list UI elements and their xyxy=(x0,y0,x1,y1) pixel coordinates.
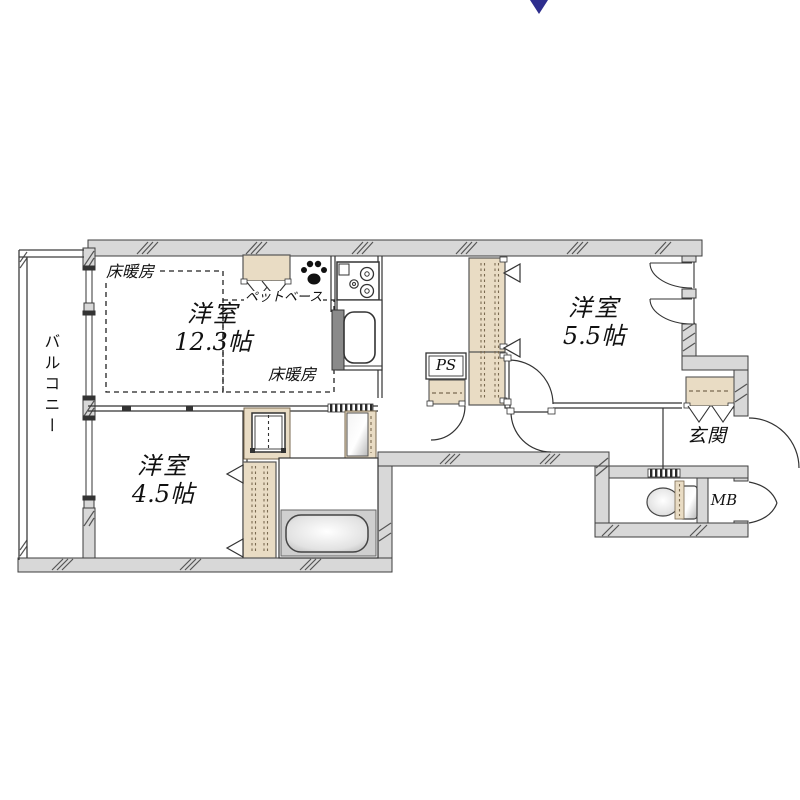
paw-icon xyxy=(301,261,327,285)
pet-base-label: ペットベース xyxy=(244,291,323,306)
entrance-label: 玄関 xyxy=(677,426,737,448)
kitchen xyxy=(332,262,382,370)
burner-icon xyxy=(361,285,374,298)
vanity xyxy=(345,411,376,458)
bedroom2-name: 洋室 xyxy=(494,295,694,323)
burner-icon xyxy=(361,268,374,281)
bathroom xyxy=(279,458,378,558)
shoe-cabinet xyxy=(684,377,734,422)
floorplan-drawing xyxy=(0,0,800,800)
ps-label: PS xyxy=(426,357,466,374)
sink xyxy=(344,312,375,363)
floor-heating-label-1: 床暖房 xyxy=(104,263,156,281)
grill xyxy=(339,264,349,275)
partition-track-marks xyxy=(122,406,193,411)
bedroom3-name: 洋室 xyxy=(63,453,263,481)
living-room-size: 12.3帖 xyxy=(113,329,313,357)
toilet xyxy=(647,486,697,519)
bedroom2-size: 5.5帖 xyxy=(494,323,694,351)
counter-side-panel xyxy=(332,310,344,370)
mb-label: MB xyxy=(704,492,744,509)
toilet-sliding-door xyxy=(648,469,680,477)
bedroom3-size: 4.5帖 xyxy=(63,481,263,509)
balcony-label: バルコニー xyxy=(41,333,59,508)
north-arrow-icon xyxy=(530,0,548,14)
burner-icon xyxy=(350,280,358,288)
toilet-door-frame xyxy=(675,481,684,519)
bathtub xyxy=(286,515,368,552)
floorplan: バルコニー 床暖房 床暖房 洋室 12.3帖 ペットベース 洋室 5.5帖 洋室… xyxy=(0,0,800,800)
floor-heating-label-2: 床暖房 xyxy=(266,366,318,384)
washer-space xyxy=(244,408,290,459)
